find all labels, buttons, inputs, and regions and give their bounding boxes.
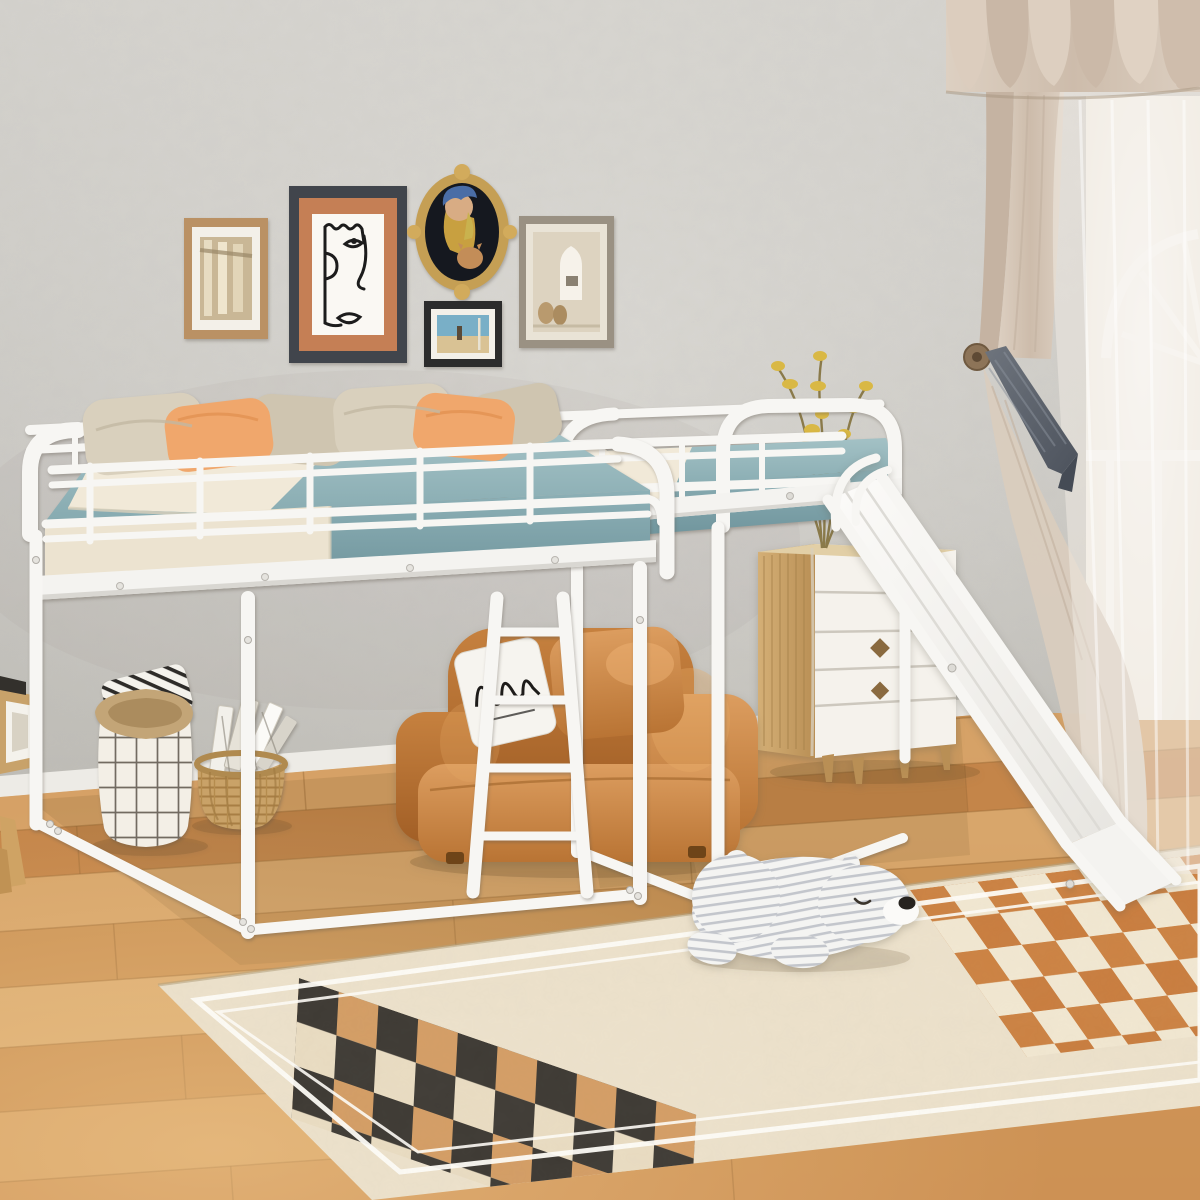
frame-arch <box>519 216 614 348</box>
frame-beach <box>424 301 502 367</box>
bedroom-photo <box>0 0 1200 1200</box>
bedroom-scene <box>0 0 1200 1200</box>
sofa-foot <box>446 852 464 864</box>
valance <box>946 0 1200 98</box>
dresser-side <box>758 544 815 758</box>
frame-face <box>289 186 407 363</box>
sofa-foot <box>688 846 706 858</box>
cat <box>457 247 483 269</box>
frame-columns <box>184 218 268 339</box>
bear-nose <box>899 897 916 910</box>
arch-opening <box>560 246 582 300</box>
